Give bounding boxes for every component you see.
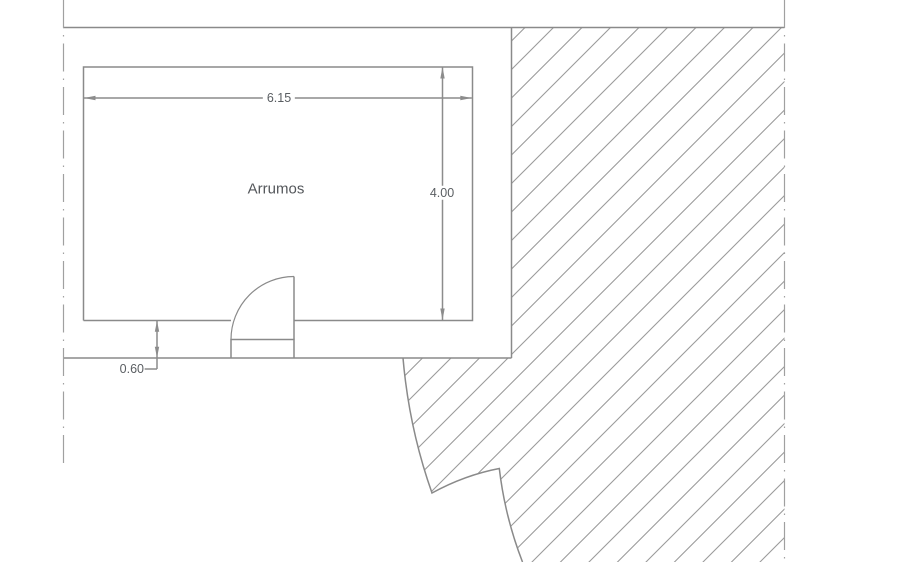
floor-plan-drawing — [0, 0, 903, 562]
floor-plan-canvas: Arrumos 6.15 4.00 0.60 — [0, 0, 903, 562]
dim-arrowhead-up — [440, 67, 444, 79]
dim-offset-line — [145, 321, 158, 369]
dimensions — [84, 67, 472, 369]
dim-arrowhead-up — [155, 321, 159, 332]
dim-arrowhead-left — [84, 96, 96, 100]
hatched-ground-region — [403, 28, 785, 562]
dim-offset-text: 0.60 — [118, 361, 145, 376]
dim-arrowhead-right — [460, 96, 472, 100]
dim-arrowhead-down — [440, 309, 444, 321]
dimension-wall-offset — [145, 321, 160, 369]
door-swing-arc — [231, 277, 294, 340]
room-label: Arrumos — [248, 182, 305, 197]
door-threshold — [231, 340, 294, 359]
dim-width-text: 6.15 — [263, 91, 295, 106]
dim-arrowhead-down — [155, 347, 159, 358]
dim-depth-text: 4.00 — [426, 185, 458, 200]
